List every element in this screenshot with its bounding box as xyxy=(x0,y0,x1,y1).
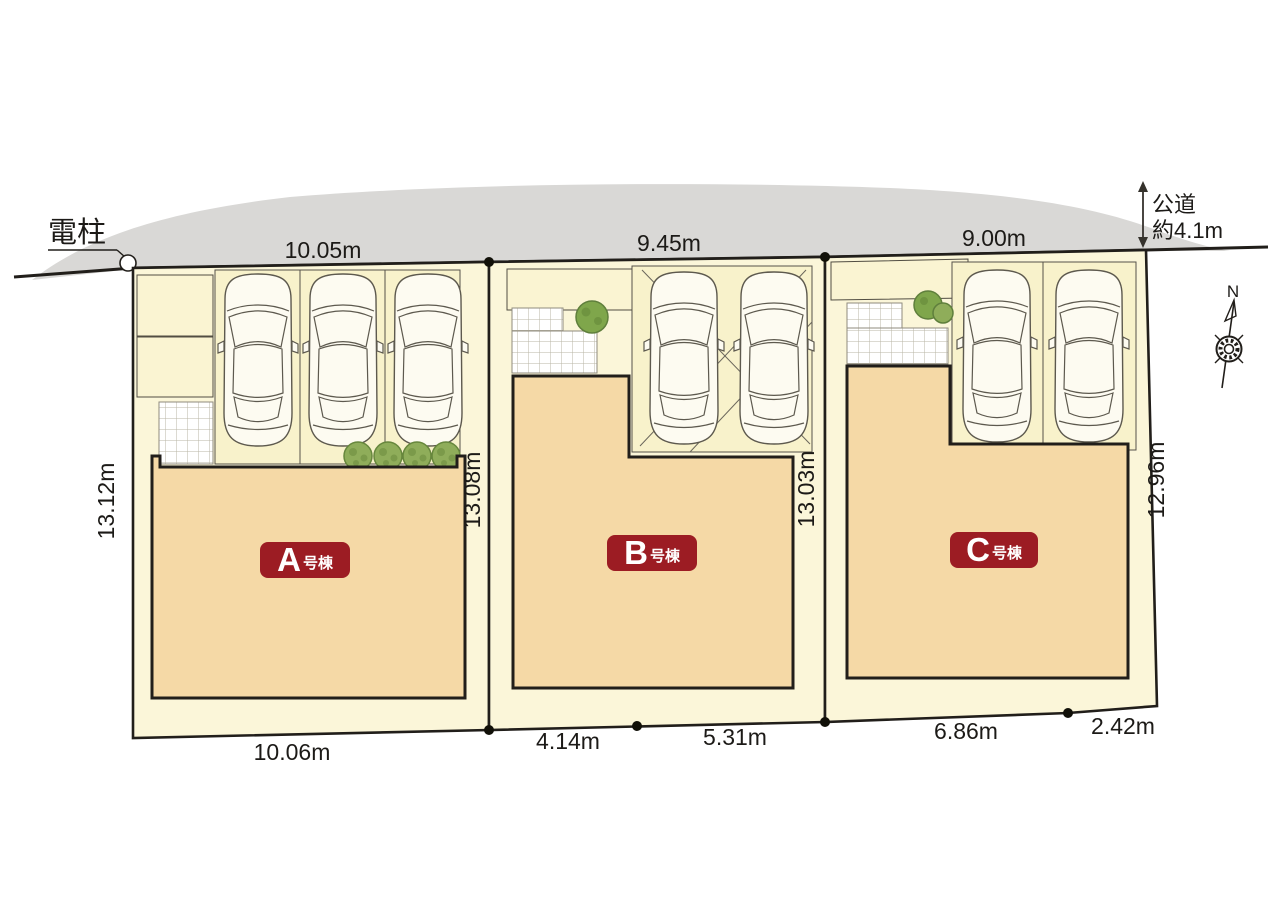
dim-lot-b-bottom-1: 4.14m xyxy=(536,728,600,754)
dim-lot-a-bottom: 10.06m xyxy=(254,739,331,765)
building-a: A 号棟 xyxy=(152,456,465,698)
lot-c-tiled-approach-upper xyxy=(847,303,902,328)
car-icon xyxy=(388,274,468,446)
lot-a-tiled-approach xyxy=(159,402,213,464)
lot-b-tiled-approach-lower xyxy=(512,331,597,373)
car-icon xyxy=(303,274,383,446)
dim-lot-b-right: 13.03m xyxy=(793,451,819,528)
site-plan-page: 電柱 公道 約4.1m A 号棟 xyxy=(0,0,1280,924)
compass: N xyxy=(1215,282,1243,388)
tree-icon xyxy=(576,301,608,333)
building-a-label-suffix: 号棟 xyxy=(303,554,334,572)
dim-lot-b-top: 9.45m xyxy=(637,230,701,256)
lot-c-tiled-approach-lower xyxy=(847,328,948,364)
road-width-label: 約4.1m xyxy=(1152,218,1223,243)
boundary-dot xyxy=(1063,708,1073,718)
car-icon xyxy=(734,272,814,444)
car-icon xyxy=(218,274,298,446)
building-b-label: B 号棟 xyxy=(607,534,697,571)
boundary-dot xyxy=(484,725,494,735)
building-a-label: A 号棟 xyxy=(260,541,350,578)
building-b-label-suffix: 号棟 xyxy=(650,547,681,565)
road-type-label: 公道 xyxy=(1152,192,1196,217)
compass-north-label: N xyxy=(1227,282,1239,301)
dim-lot-a-top: 10.05m xyxy=(285,237,362,263)
building-a-label-letter: A xyxy=(277,541,301,578)
compass-rose-inner xyxy=(1225,345,1234,354)
lot-c-entry-court xyxy=(831,259,968,300)
dim-lot-a-right: 13.08m xyxy=(459,452,485,529)
boundary-dot xyxy=(820,252,830,262)
lot-a-garden-plot-2 xyxy=(137,337,213,397)
lot-a-garden-plot-1 xyxy=(137,275,213,336)
boundary-dot xyxy=(484,257,494,267)
dim-lot-c-right: 12.96m xyxy=(1143,442,1169,519)
building-c-label: C 号棟 xyxy=(950,531,1038,568)
boundary-dot xyxy=(820,717,830,727)
building-c-label-letter: C xyxy=(966,531,990,568)
dim-lot-b-bottom-2: 5.31m xyxy=(703,724,767,750)
site-plan-canvas: 電柱 公道 約4.1m A 号棟 xyxy=(0,0,1280,924)
lot-b-tiled-approach-upper xyxy=(512,308,563,331)
dim-lot-c-top: 9.00m xyxy=(962,225,1026,251)
building-c-label-suffix: 号棟 xyxy=(992,544,1023,562)
building-b-label-letter: B xyxy=(624,534,648,571)
dim-lot-c-bottom-2: 2.42m xyxy=(1091,713,1155,739)
utility-pole-label: 電柱 xyxy=(48,216,106,249)
compass-needle-head xyxy=(1225,300,1236,321)
car-icon xyxy=(957,270,1037,442)
dim-lot-c-bottom-1: 6.86m xyxy=(934,718,998,744)
lot-a-exterior-features xyxy=(137,270,468,470)
boundary-dot xyxy=(632,721,642,731)
car-icon xyxy=(644,272,724,444)
lot-b-entry-court xyxy=(507,269,633,310)
road-width-arrowhead-top xyxy=(1138,181,1148,192)
car-icon xyxy=(1049,270,1129,442)
dim-lot-a-left: 13.12m xyxy=(93,463,119,540)
